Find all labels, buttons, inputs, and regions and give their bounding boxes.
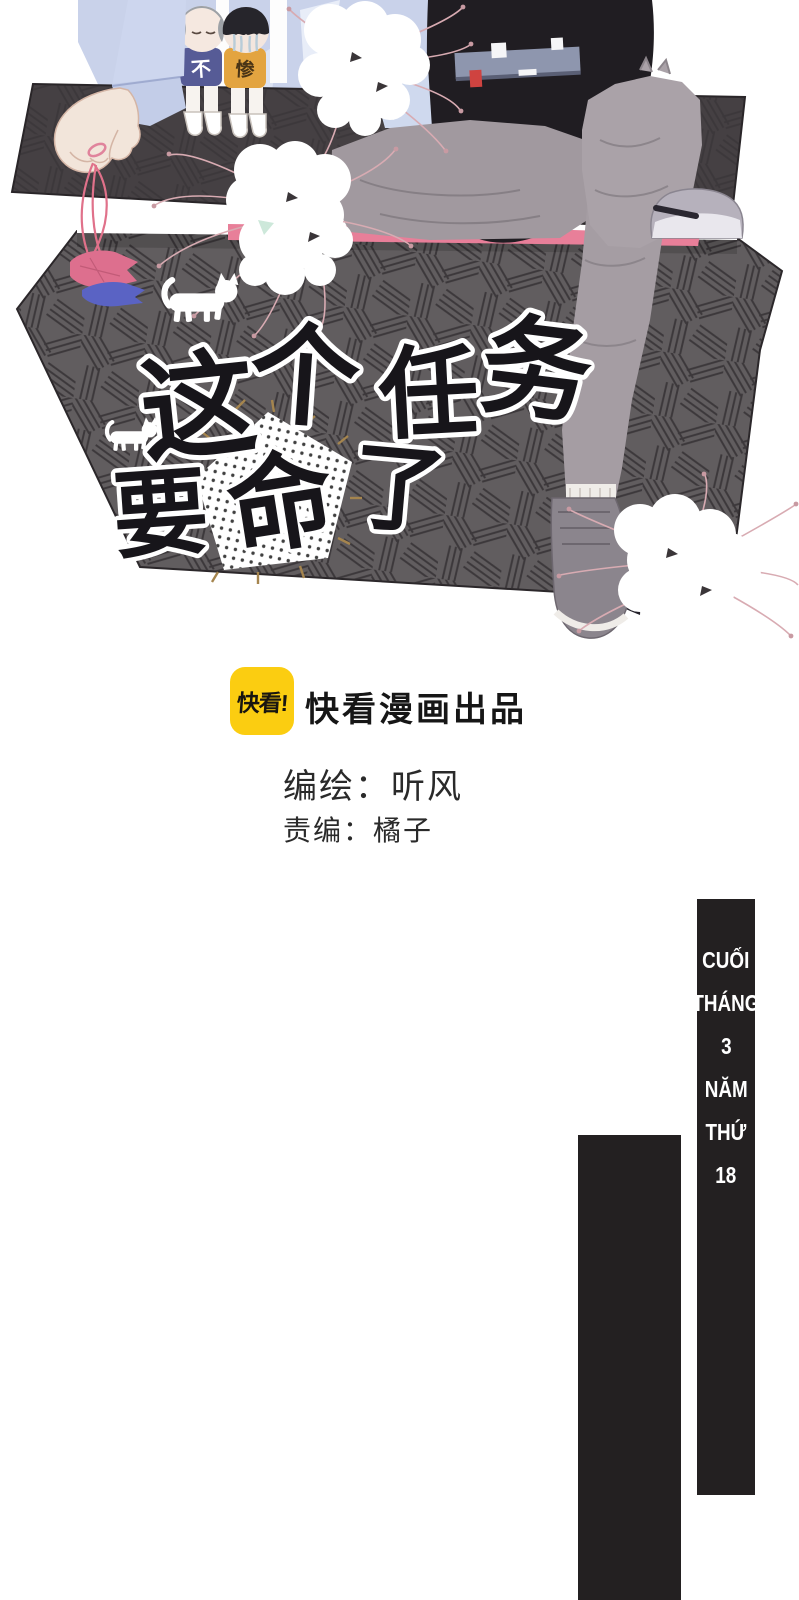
panel-divider-rect <box>578 1135 681 1600</box>
title-char-2: 个 <box>245 312 363 442</box>
comic-title-page: 不 惨 <box>0 0 799 1600</box>
date-banner: CUỐI THÁNG 3 NĂM THỨ 18 <box>697 899 755 1495</box>
title-char-3: 任 <box>376 335 482 452</box>
producer-text: 快看漫画出品 <box>305 682 527 731</box>
banner-line: CUỐI <box>702 939 749 982</box>
pants-thigh <box>330 120 600 240</box>
author-credit: 编绘：听风 <box>283 759 463 808</box>
kid-left-shirt-char: 不 <box>190 58 211 81</box>
title-char-5: 要 <box>110 459 212 571</box>
editor-credit: 责编：橘子 <box>283 809 433 849</box>
banner-line: 3 <box>721 1025 731 1068</box>
wall-gap-right <box>270 0 287 83</box>
red-tag <box>469 70 482 88</box>
kuaikan-logo: 快看! <box>230 667 294 735</box>
banner-line: THÁNG <box>692 982 759 1025</box>
banner-line: 18 <box>716 1154 737 1197</box>
kid-right-shirt-char: 惨 <box>235 58 256 82</box>
chibi-kid-right: 惨 <box>223 7 269 137</box>
banner-line: THỨ <box>706 1111 747 1154</box>
chibi-kid-left: 不 <box>179 6 225 135</box>
kuaikan-logo-text: 快看! <box>235 684 288 718</box>
banner-line: NĂM <box>705 1068 748 1111</box>
title-char-6-accent: 命 <box>220 438 342 570</box>
title-char-4: 务 <box>474 303 598 438</box>
cover-illustration: 不 惨 <box>0 0 799 660</box>
title-char-7: 了 <box>347 433 451 547</box>
